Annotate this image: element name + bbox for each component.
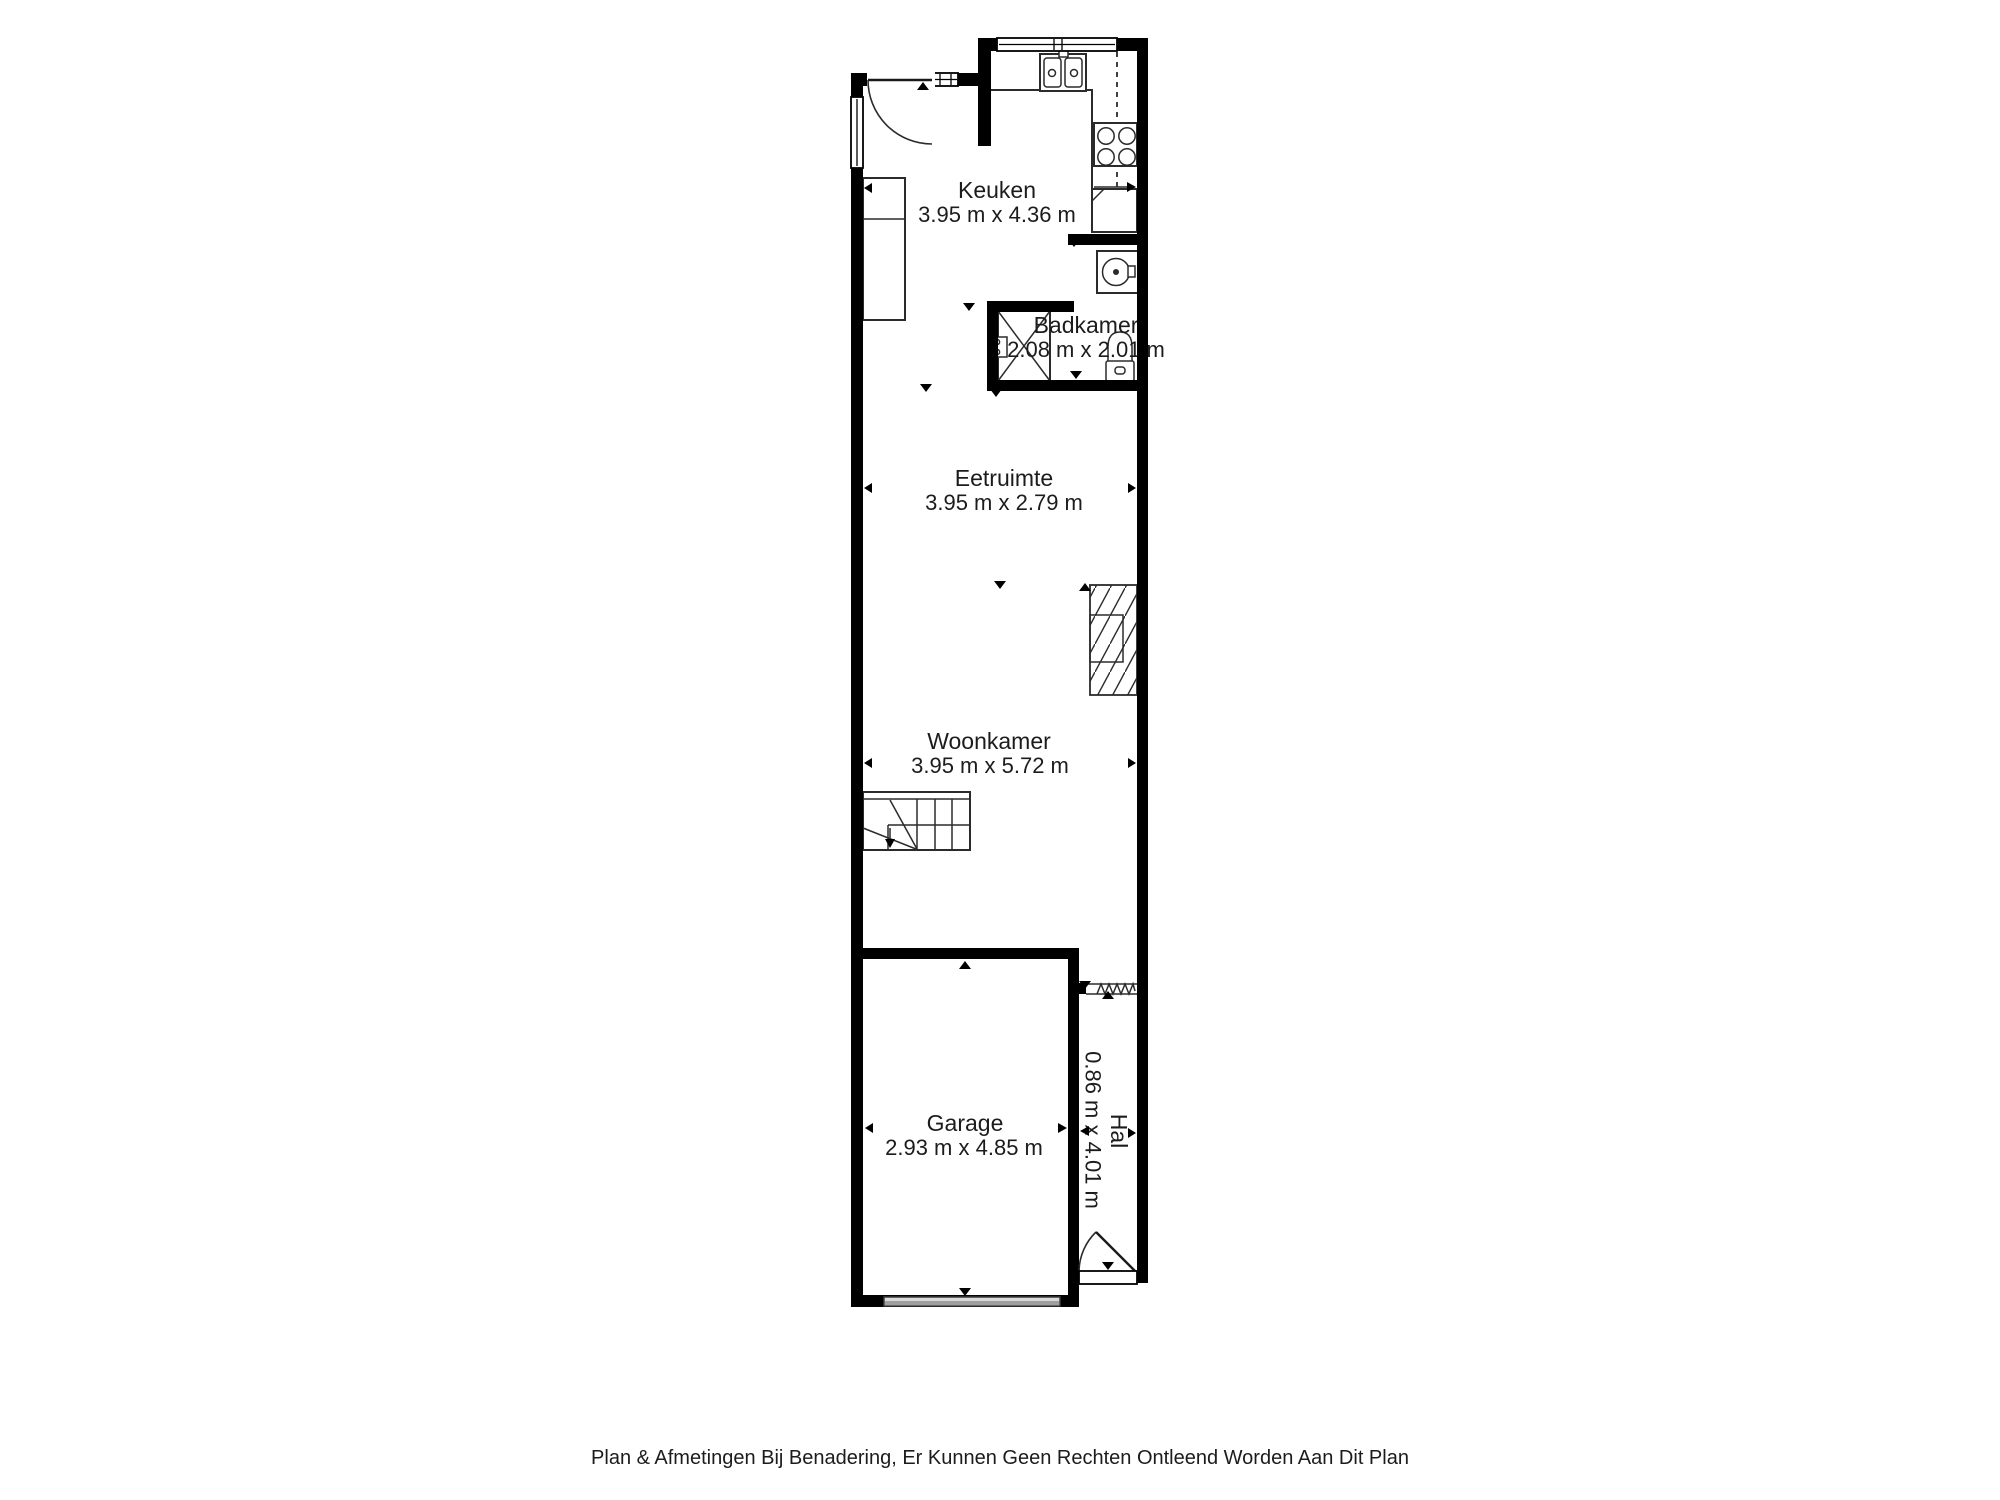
kitchen-sink-icon [1040,54,1086,91]
measure-arrow [1070,371,1082,379]
disclaimer-text: Plan & Afmetingen Bij Benadering, Er Kun… [591,1447,1409,1469]
laundry-fixtures [1097,251,1138,293]
wall-garage-top [851,948,1079,959]
washing-machine-handle [1128,266,1135,277]
wall-bathroom-left [987,301,998,391]
wall-top-left-b [958,73,979,86]
wall-garage-right [1068,948,1079,1307]
measure-arrow [990,389,1002,397]
wall-bathroom-top [987,301,1074,312]
measure-arrow [963,303,975,311]
staircase-upper-hatched [1090,585,1137,695]
staircase-main [863,792,970,850]
kitchen-appliance [1092,189,1137,232]
room-label-woonkamer: Woonkamer [927,728,1051,754]
wall-right [1137,38,1148,1283]
front-door-swing-icon [1079,1232,1096,1271]
measure-arrow [865,1123,873,1133]
hatched-stair-block [1090,585,1137,695]
measure-arrow [1102,1262,1114,1270]
hal-opening-symbol [1086,984,1137,994]
room-dims-keuken: 3.95 m x 4.36 m [918,202,1076,227]
measure-arrow [920,384,932,392]
room-dims-eetruimte: 3.95 m x 2.79 m [925,490,1083,515]
garage-door-shade [885,1301,1059,1305]
zigzag-icon [1097,984,1135,994]
washing-machine-dot [1113,269,1119,275]
measure-arrow [864,483,872,493]
measure-arrow [1128,758,1136,768]
room-label-keuken: Keuken [958,177,1036,203]
measure-arrow [994,581,1006,589]
floorplan-canvas: Keuken 3.95 m x 4.36 m Badkamer 2.08 m x… [0,0,2000,1500]
measure-arrow [1058,1123,1067,1133]
room-label-badkamer: Badkamer [1034,312,1139,338]
wall-jog [978,38,991,146]
room-label-eetruimte: Eetruimte [955,465,1053,491]
room-dims-woonkamer: 3.95 m x 5.72 m [911,753,1069,778]
front-door-leaf [1096,1232,1135,1271]
measure-arrow [1128,483,1136,493]
room-dims-garage: 2.93 m x 4.85 m [885,1135,1043,1160]
measure-arrow [864,758,872,768]
room-label-garage: Garage [927,1110,1004,1136]
toilet-tank [1106,361,1134,381]
wall-left [851,73,863,1307]
tall-cabinet [863,178,905,320]
measure-arrow [959,1288,971,1296]
measure-arrow [959,961,971,969]
front-door-threshold [1079,1271,1137,1284]
wall-bathroom-bottom [987,380,1148,391]
